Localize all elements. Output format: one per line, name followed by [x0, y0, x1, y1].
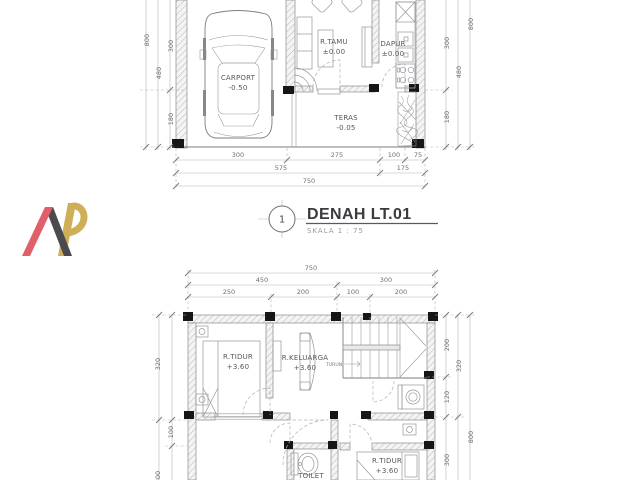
dim-f2-top-750: 750: [305, 264, 317, 272]
floor2-dimensions-top: 750 450 300 250 200 100 200: [185, 264, 438, 315]
floor2-plan: 750 450 300 250 200 100 200: [152, 264, 476, 480]
dim-f2-top-450: 450: [256, 276, 268, 284]
dim-f1-bottom-175: 175: [397, 164, 409, 172]
dim-f1-left-180: 180: [167, 113, 175, 125]
room-level-carport: -0.50: [228, 84, 247, 92]
logo-ar-monogram: [22, 203, 84, 256]
dim-f2-left-320: 320: [154, 358, 162, 370]
dim-f1-bottom-100: 100: [388, 151, 400, 159]
floor1-plan: CARPORT -0.50 R.TAMU ±0.00 DAPUR ±0.00 T…: [140, 0, 476, 189]
washing-machine: [373, 381, 424, 435]
garden-hatch: [396, 92, 417, 146]
stair-direction-label: TURUN: [325, 362, 342, 368]
room-label-rtidur2: R.TIDUR: [372, 457, 402, 465]
logo-red-leg: [22, 207, 53, 256]
sheet-title: DENAH LT.01: [307, 206, 412, 223]
bedroom1-furniture: [196, 326, 270, 417]
room-label-dapur: DAPUR: [380, 40, 405, 48]
dim-f1-left-480: 480: [155, 67, 163, 79]
dim-f1-right-800: 800: [467, 18, 475, 30]
dining-chairs: [311, 0, 364, 13]
room-label-carport: CARPORT: [221, 74, 256, 82]
floor1-dimensions-right: 800 300 480 180: [425, 0, 476, 150]
title-block: 1 DENAH LT.01 SKALA 1 : 75: [258, 200, 438, 238]
room-level-rkeluarga: +3.60: [294, 364, 316, 372]
sheet-number: 1: [279, 215, 285, 226]
dim-f2-top-100: 100: [347, 288, 359, 296]
room-label-teras: TERAS: [333, 114, 358, 122]
dim-f1-right-480: 480: [455, 66, 463, 78]
room-level-rtamu: ±0.00: [323, 48, 345, 56]
room-label-rtamu: R.TAMU: [320, 38, 348, 46]
dim-f2-top-200b: 200: [395, 288, 407, 296]
dim-f1-bottom-300: 300: [232, 151, 244, 159]
dim-f2-top-250: 250: [223, 288, 235, 296]
dim-f2-right-120: 120: [443, 391, 451, 403]
dim-f2-left-800: 800: [154, 471, 162, 480]
floor2-dimensions-left: 320 100 800: [152, 312, 188, 480]
room-label-toilet: TOILET: [297, 472, 324, 480]
floor1-walls: [172, 0, 425, 148]
dim-f2-right-800: 800: [467, 431, 475, 443]
room-level-teras: -0.05: [336, 124, 355, 132]
room-level-rtidur2: +3.60: [376, 467, 398, 475]
dim-f2-left-100: 100: [167, 426, 175, 438]
dim-f1-bottom-275: 275: [331, 151, 343, 159]
dim-f1-left-300: 300: [167, 40, 175, 52]
sheet-scale: SKALA 1 : 75: [307, 227, 364, 235]
floor-plan-drawing: CARPORT -0.50 R.TAMU ±0.00 DAPUR ±0.00 T…: [0, 0, 640, 480]
staircase: TURUN: [325, 317, 427, 378]
drawing-sheet: CARPORT -0.50 R.TAMU ±0.00 DAPUR ±0.00 T…: [0, 0, 640, 480]
dim-f1-right-180: 180: [443, 111, 451, 123]
room-label-rkeluarga: R.KELUARGA: [282, 354, 328, 362]
dim-f1-bottom-75: 75: [414, 151, 422, 159]
dim-f2-top-300: 300: [380, 276, 392, 284]
room-level-rtidur1: +3.60: [227, 363, 249, 371]
dim-f1-bottom-750: 750: [303, 177, 315, 185]
dim-f2-right-320: 320: [455, 360, 463, 372]
dim-f2-right-200: 200: [443, 339, 451, 351]
dim-f2-top-200a: 200: [297, 288, 309, 296]
room-label-rtidur1: R.TIDUR: [223, 353, 253, 361]
dim-f1-bottom-575: 575: [275, 164, 287, 172]
door-arcs-floor1: [313, 60, 405, 87]
dim-f1-left-800: 800: [143, 34, 151, 46]
room-level-dapur: ±0.00: [382, 50, 404, 58]
living-room-furniture: [297, 0, 372, 69]
floor1-dimensions-bottom: 300 275 100 75 575 175 750: [173, 148, 428, 189]
dim-f1-right-300: 300: [443, 37, 451, 49]
window: [215, 414, 262, 419]
dim-f2-right-300: 300: [443, 454, 451, 466]
